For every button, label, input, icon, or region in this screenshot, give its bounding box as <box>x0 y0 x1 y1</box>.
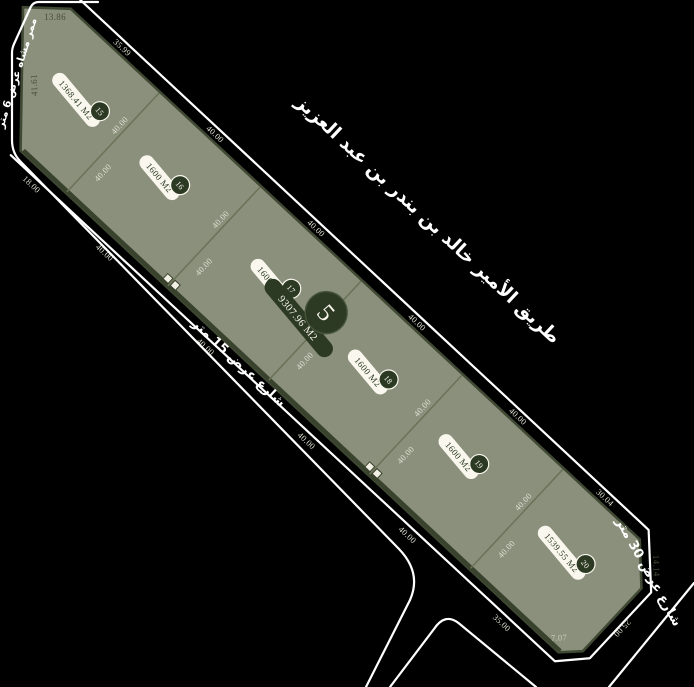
plat-map: 35.99 40.00 40.00 40.00 40.00 30.04 18.0… <box>0 0 694 687</box>
dimension-label: 7.07 <box>551 632 567 643</box>
dimension-label: 41.61 <box>29 74 40 96</box>
dimension-label: 13.86 <box>44 12 66 22</box>
plat-map-canvas: 35.99 40.00 40.00 40.00 40.00 30.04 18.0… <box>0 0 694 687</box>
